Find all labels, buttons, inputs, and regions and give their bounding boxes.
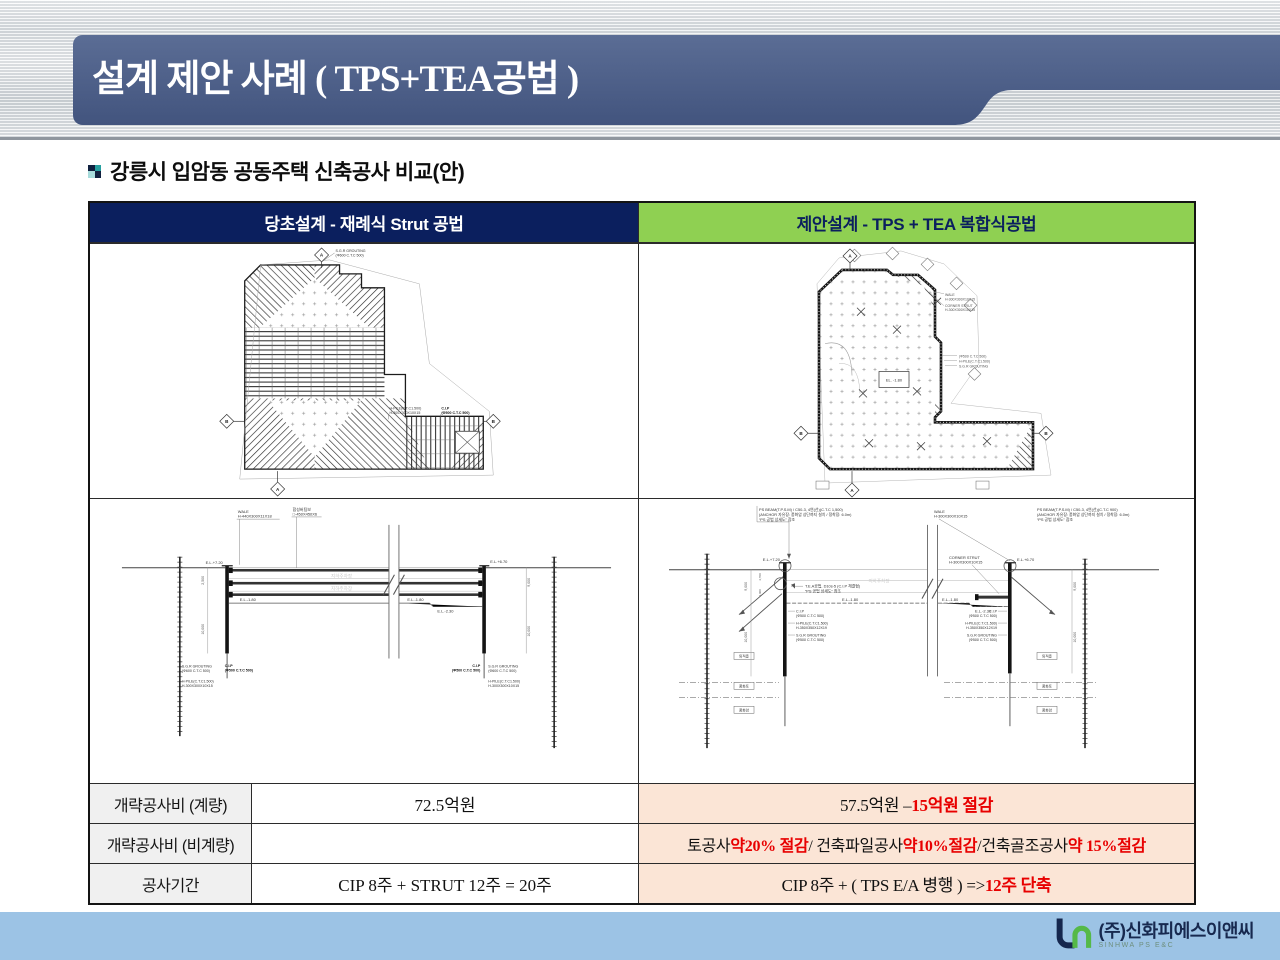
hpile-right: H-PILE(C.T.C1.500) [488, 679, 520, 683]
seg-earthwork-saving: 약20% 절감 [730, 832, 808, 856]
sgr-left: S.G.R GROUTING [182, 664, 212, 668]
plan-hpile-label: H-PILE(C.T.C1.500) [389, 406, 421, 410]
t-wale-spec: H-300X300X10X15 [934, 514, 967, 519]
plan-drawing-original: A A B B S.G.R GROUTING (Φ600 C.T.C 500) … [90, 244, 639, 499]
column-header-original: 당초설계 - 재례식 Strut 공법 [90, 203, 639, 244]
t-hpile-l-spec: H-350X350X12X19 [796, 626, 827, 630]
dim-2500: 2,500 [201, 576, 205, 585]
t-corner-spec: H-300X300X10X15 [949, 560, 982, 565]
plan-level-box: EL. -1.80 [886, 377, 903, 382]
title-bar: 설계 제안 사례 ( TPS+TEA공법 ) [0, 0, 1280, 140]
subtitle-row: 강릉시 입암동 공동주택 신축공사 비교(안) [88, 156, 464, 186]
soil-layer-3-l: 풍화암 [739, 708, 750, 713]
footer-bar: (주)신화피에스이앤씨 SINHWA PS E&C [0, 912, 1280, 960]
ps-beam-right-3: “PS 공법 상세도” 참조 [1037, 517, 1073, 522]
row-label-cost-measured: 개략공사비 (계량) [90, 784, 252, 824]
t-dim-4700: 4,700 [758, 573, 762, 581]
t-el-m180-l: E.L.-1.80 [842, 597, 859, 602]
t-dim-4300: 4,300 [758, 589, 762, 597]
cost-measured-proposed: 57.5억원 – 15억원 절감 [639, 784, 1194, 824]
plan-grout-label: S.G.R GROUTING [336, 249, 366, 253]
tps-plan-sgr: S.G.R GROUTING [959, 365, 989, 369]
t-sgr-l: S.G.R GROUTING [796, 634, 826, 638]
comparison-table: 당초설계 - 재례식 Strut 공법 제안설계 - TPS + TEA 복합식… [88, 201, 1196, 905]
t-hpile-l: H-PILE(C.T.C1.500) [796, 622, 828, 626]
cip-left-spec: (Φ500 C.T.C 500) [225, 668, 254, 672]
seg-frame: /건축골조공사 [977, 832, 1068, 856]
tps-section-svg: 퇴적층 풍화토 풍화암 퇴적층 풍화토 풍화암 9,000 10,000 4,7… [639, 499, 1194, 783]
cost-measured-original: 72.5억원 [252, 784, 639, 824]
parking-faint-2: 지하주차장 [331, 585, 353, 592]
t-sgr-l-spec: (Φ500 C.T.C 500) [796, 638, 824, 642]
tps-plan-corner-strut: CORNER STRUT [945, 304, 974, 308]
t-el-720: E.L.+7.20 [763, 557, 781, 562]
tps-plan-svg: EL. -1.80 (Φ500 C.T.C 500) H-PILE(C.T.C1… [639, 244, 1194, 498]
el-m180-l: E.L.-1.80 [240, 597, 257, 602]
plan-grout-spec: (Φ600 C.T.C 500) [336, 254, 364, 258]
cost-unmeasured-proposed: 토공사 약20% 절감 / 건축파일공사 약10%절감 /건축골조공사 약 15… [639, 824, 1194, 864]
el-670: E.L.+6.70 [490, 559, 508, 564]
tea-refer: “PS 공법 상세도” 참조 [805, 589, 841, 594]
cip-right: C.I.P [472, 664, 481, 668]
sgr-right-spec: (Φ600 C.T.C 500) [488, 669, 516, 673]
hpile-left: H-PILE(C.T.C1.500) [182, 679, 214, 683]
parking-faint-1: 지하주차장 [331, 573, 353, 580]
section-drawing-original: 2,500 10,000 9,000 10,000 E.L.+7.20 E.L.… [90, 499, 639, 784]
t-sgr-r: S.G.R GROUTING [967, 634, 997, 638]
slide: 설계 제안 사례 ( TPS+TEA공법 ) 강릉시 입암동 공동주택 신축공사… [0, 0, 1280, 960]
dim-10000-left: 10,000 [201, 624, 205, 635]
column-header-proposed: 제안설계 - TPS + TEA 복합식공법 [639, 203, 1194, 244]
plan-drawing-proposed: EL. -1.80 (Φ500 C.T.C 500) H-PILE(C.T.C1… [639, 244, 1194, 499]
company-name: (주)신화피에스이앤씨 [1098, 922, 1254, 941]
t-cip-r: C.I.P [989, 610, 998, 614]
t-cip-l-spec: (Φ500 C.T.C 500) [796, 614, 824, 618]
sgr-left-spec: (Φ600 C.T.C 500) [182, 669, 210, 673]
t-el-670: E.L.+6.70 [1017, 557, 1035, 562]
soil-layer-1-r: 퇴적층 [1042, 654, 1053, 659]
t-cip-r-spec: (Φ500 C.T.C 500) [969, 614, 997, 618]
company-logo-icon [1046, 915, 1092, 957]
seg-pile-saving: 약10%절감 [903, 832, 977, 856]
seg-frame-saving: 약 15%절감 [1068, 832, 1146, 856]
t-hpile-r: H-PILE(C.T.C1.500) [965, 622, 997, 626]
cip-right-spec: (Φ500 C.T.C 500) [452, 668, 481, 672]
duration-text: CIP 8주 + ( TPS E/A 병행 ) => [782, 871, 985, 896]
dim-10000-right: 10,000 [527, 626, 531, 637]
row-label-duration: 공사기간 [90, 864, 252, 903]
ps-beam-left-3: “PS 공법 상세도” 참조 [759, 517, 795, 522]
t-dim-9000-r: 9,000 [1073, 582, 1077, 591]
strut-plan-svg: A A B B S.G.R GROUTING (Φ600 C.T.C 500) … [90, 244, 638, 498]
cost-text: 57.5억원 – [840, 791, 911, 816]
t-dim-10000-l: 10,000 [744, 632, 748, 643]
t-el-m180-r: E.L.-1.80 [942, 597, 959, 602]
hpile-left-spec: H-300X300X10X15 [182, 684, 213, 688]
tps-plan-cip: (Φ500 C.T.C 500) [959, 355, 986, 359]
cost-saving-text: 15억원 절감 [911, 791, 993, 816]
duration-saving-text: 12주 단축 [985, 871, 1051, 896]
t-hpile-r-spec: H-350X350X12X19 [966, 626, 997, 630]
t-sgr-r-spec: (Φ500 C.T.C 500) [969, 638, 997, 642]
tps-plan-wale: WALE [945, 293, 955, 297]
sgr-right: S.G.R GROUTING [488, 664, 518, 668]
strut-spec: □-450X450X6 [293, 512, 318, 517]
el-720: E.L.+7.20 [206, 560, 224, 565]
tps-plan-corner-spec: H-300X300X10X15 [945, 308, 975, 312]
plan-cip-spec: (Φ500 C.T.C 500) [441, 411, 470, 415]
t-cip-l: C.I.P [796, 610, 805, 614]
wale-spec: H-440X300X11X18 [238, 514, 273, 519]
dim-9000-right: 9,000 [527, 578, 531, 587]
soil-layer-2-l: 풍화토 [739, 684, 750, 689]
el-m230: E.L.-2.30 [437, 609, 454, 614]
cost-unmeasured-original [252, 824, 639, 864]
tps-plan-hpile: H-PILE(C.T.C1.500) [959, 360, 990, 364]
page-title: 설계 제안 사례 ( TPS+TEA공법 ) [92, 48, 972, 102]
soil-layer-1-l: 퇴적층 [739, 654, 750, 659]
section-drawing-proposed: 퇴적층 풍화토 풍화암 퇴적층 풍화토 풍화암 9,000 10,000 4,7… [639, 499, 1194, 784]
plan-cip-label: C.I.P [441, 406, 450, 410]
t-parking-faint: 지하주차장 [868, 578, 890, 585]
seg-earthwork: 토공사 [687, 832, 730, 856]
tps-plan-wale-spec: H-300X300X10X15 [945, 297, 975, 301]
row-label-cost-unmeasured: 개략공사비 (비계량) [90, 824, 252, 864]
square-bullet-icon [88, 165, 101, 178]
section-heading: 강릉시 입암동 공동주택 신축공사 비교(안) [110, 156, 464, 186]
plan-hpile-spec: H-300X300X10X15 [389, 411, 420, 415]
cip-left: C.I.P [225, 664, 234, 668]
t-dim-9000-l: 9,000 [744, 582, 748, 591]
soil-layer-2-r: 풍화토 [1042, 684, 1053, 689]
duration-proposed: CIP 8주 + ( TPS E/A 병행 ) => 12주 단축 [639, 864, 1194, 903]
hpile-right-spec: H-300X300X10X15 [488, 684, 519, 688]
duration-original: CIP 8주 + STRUT 12주 = 20주 [252, 864, 639, 903]
company-name-en: SINHWA PS E&C [1098, 942, 1254, 949]
seg-pile: / 건축파일공사 [808, 832, 902, 856]
strut-section-svg: 2,500 10,000 9,000 10,000 E.L.+7.20 E.L.… [90, 499, 638, 783]
el-m180-r: E.L.-1.80 [407, 597, 424, 602]
company-logo: (주)신화피에스이앤씨 SINHWA PS E&C [1046, 915, 1254, 957]
soil-layer-3-r: 풍화암 [1042, 708, 1053, 713]
t-dim-10000-r: 10,000 [1073, 632, 1077, 643]
